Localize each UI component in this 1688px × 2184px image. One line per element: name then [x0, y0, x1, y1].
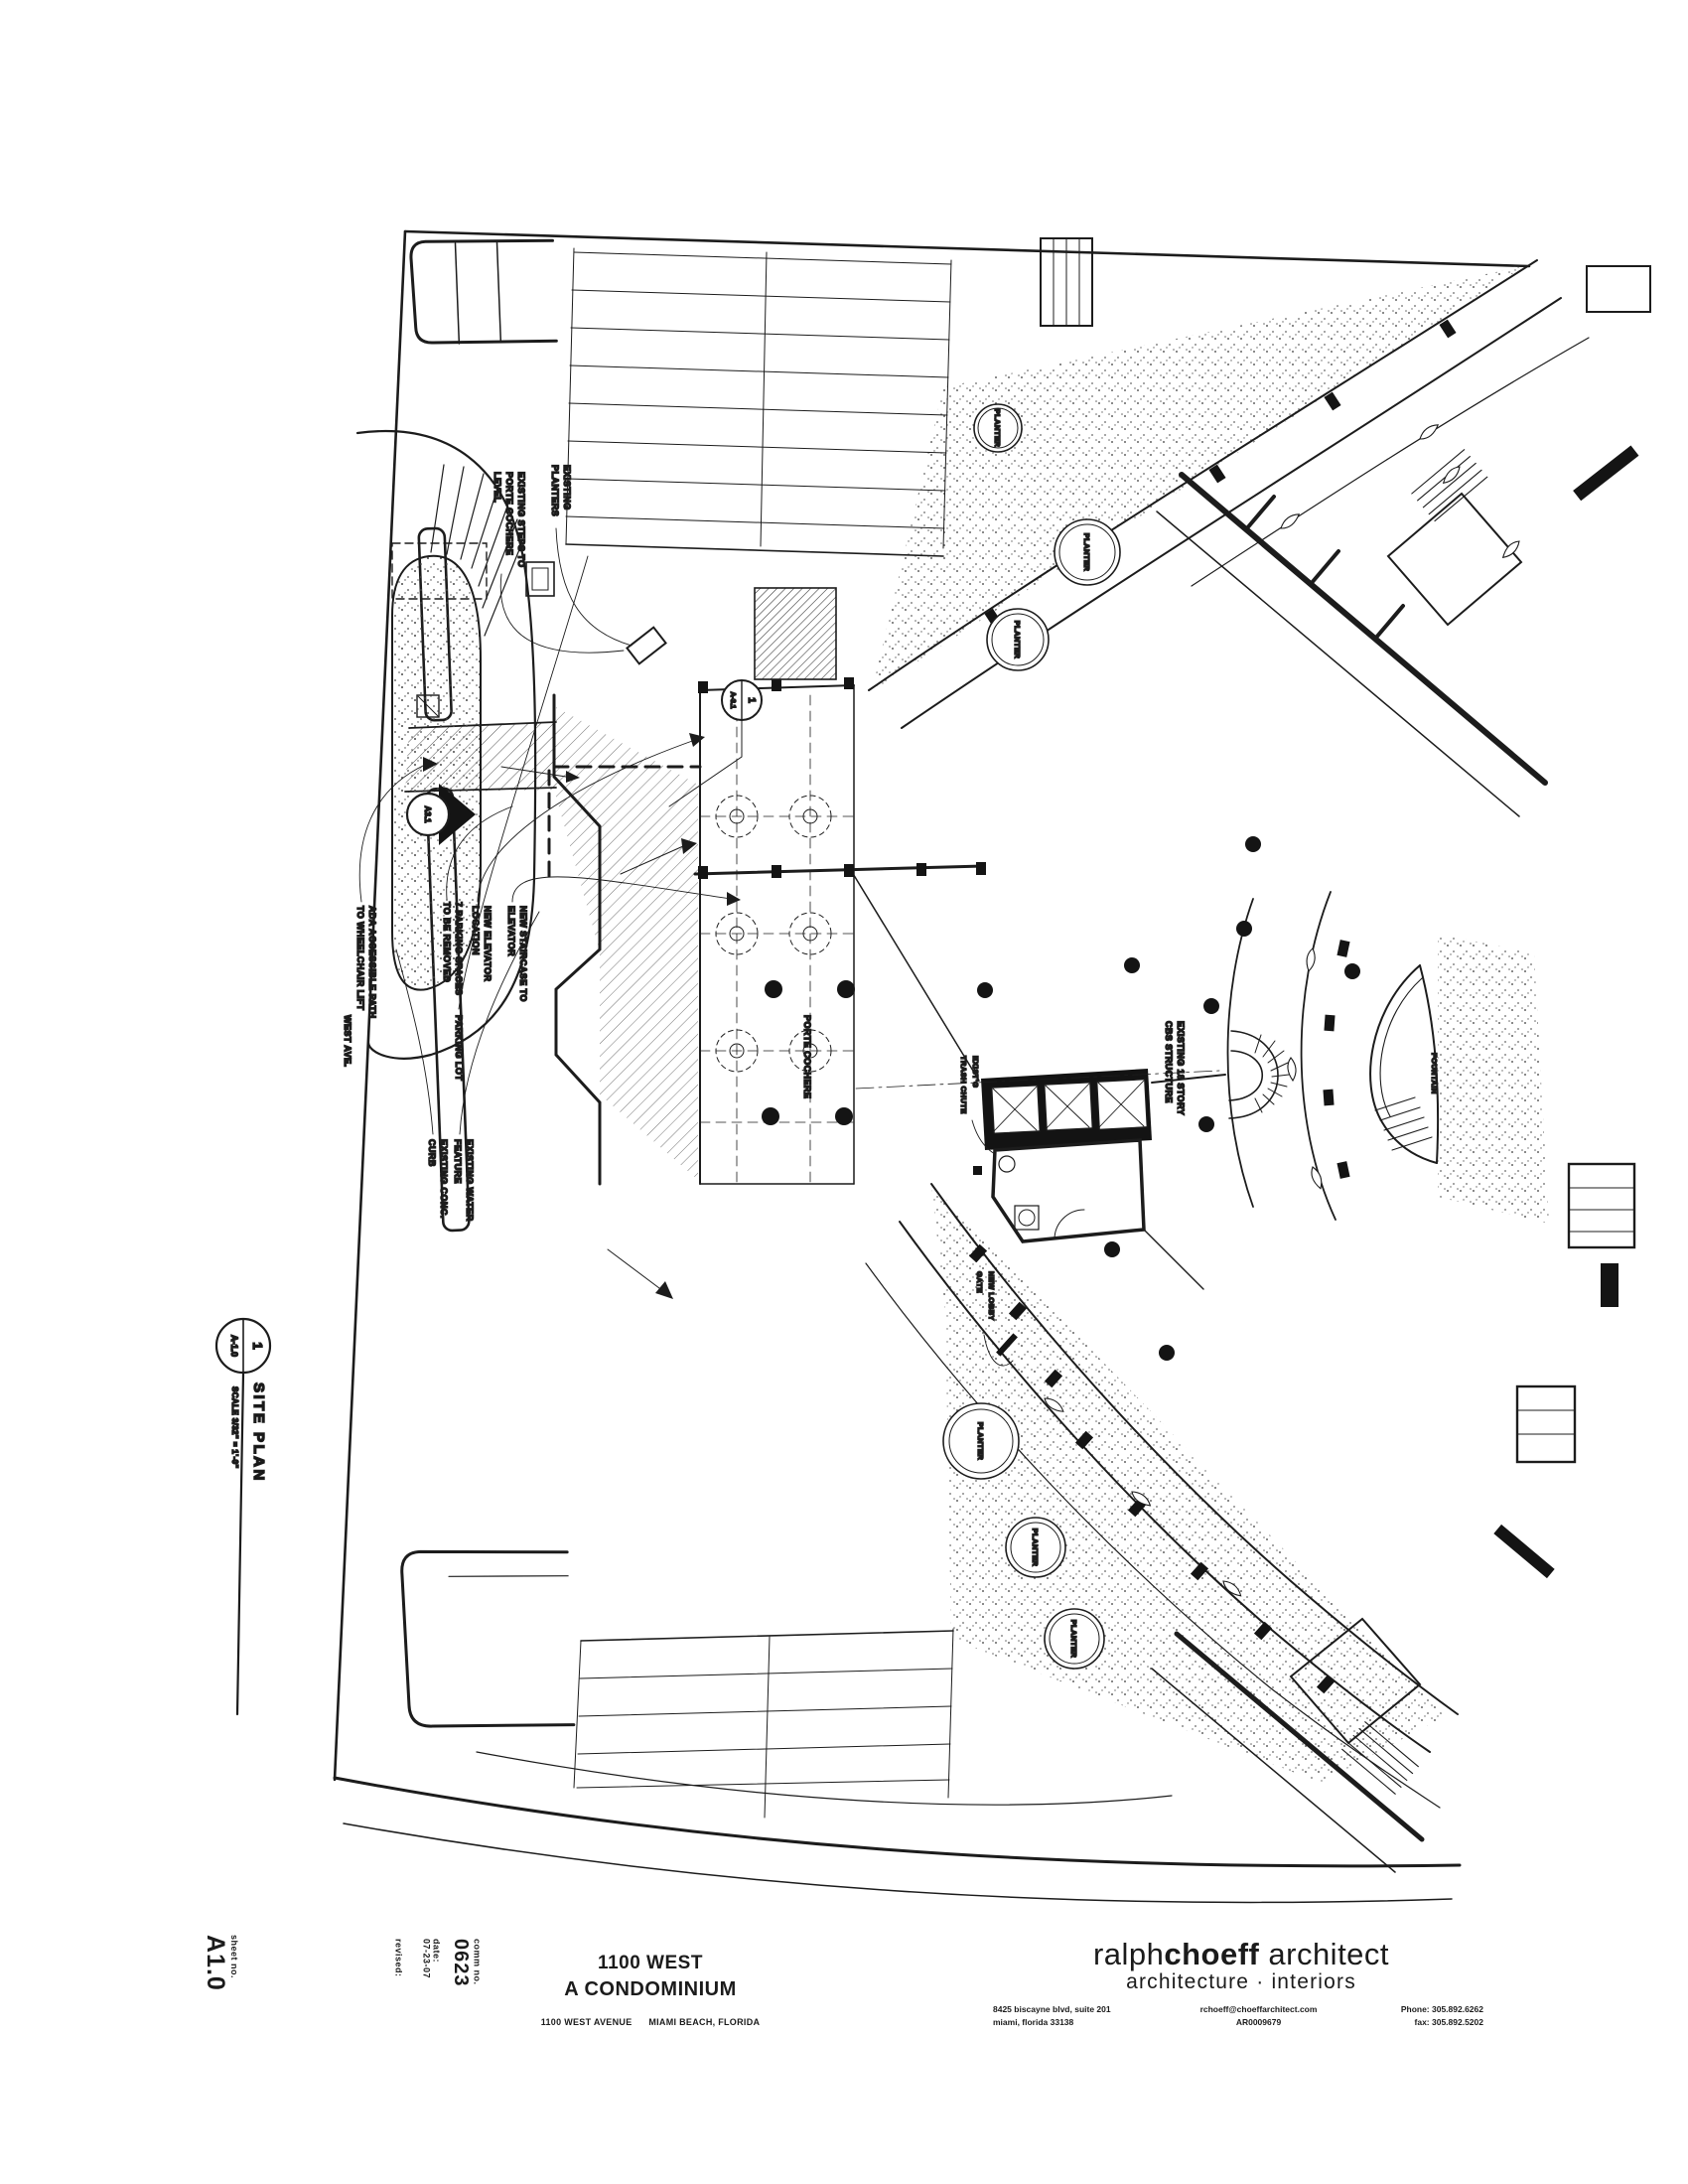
paved-plaza-textures: [872, 266, 1549, 1783]
annotation-ada-path: ADA ACCESSIBLE PATH: [367, 906, 377, 1019]
annotation-trash-chute: TRASH CHUTE: [959, 1056, 968, 1114]
annotation-new-stairs: NEW STAIRCASE TO: [518, 906, 528, 1002]
date-label: date:: [431, 1939, 441, 1978]
firm-name-part1: ralph: [1093, 1937, 1164, 1971]
annotation-existing-structure: CBS STRUCTURE: [1164, 1021, 1174, 1103]
annotation-trash-chute: EXIST'G: [971, 1056, 980, 1088]
firm-address-line2: miami, florida 33138: [993, 2016, 1177, 2029]
firm-fax: fax: 305.892.5202: [1340, 2016, 1483, 2029]
drawing-title: SITE PLAN: [250, 1383, 267, 1483]
planter-label: PLANTER: [976, 1422, 985, 1461]
annotation-conc-curb: CURB: [427, 1139, 437, 1167]
annotation-parking-lot: PARKING LOT: [454, 1015, 464, 1081]
firm-phone: Phone: 305.892.6262: [1340, 2003, 1483, 2016]
annotation-conc-curb: EXISTING CONC.: [439, 1139, 449, 1219]
detail-bubble-sheet: A-3.1: [729, 691, 736, 708]
annotation-fountain: FOUNTAIN: [1430, 1053, 1439, 1094]
bottom-parking: [574, 1629, 953, 1818]
annotation-west-ave: WEST AVE.: [343, 1015, 352, 1068]
firm-contact: rchoeff@choeffarchitect.com AR0009679: [1177, 2003, 1340, 2029]
firm-address: 8425 biscayne blvd, suite 201 miami, flo…: [993, 2003, 1177, 2029]
annotation-parking-removed: TO BE REMOVED: [442, 902, 452, 982]
drawing-scale: SCALE 3/32" = 1'-0": [230, 1386, 239, 1469]
annotation-new-stairs: ELEVATOR: [506, 906, 516, 956]
project-name-line2: A CONDOMINIUM: [516, 1978, 784, 2001]
annotation-porte-cochere: PORTE COCHERE: [802, 1015, 812, 1098]
architect-title-block: ralphchoeffarchitect architecture · inte…: [993, 1937, 1489, 2029]
planter-label: PLANTER: [1069, 1620, 1078, 1659]
planter: PLANTER: [1045, 1609, 1104, 1669]
firm-name: ralphchoeffarchitect: [993, 1937, 1489, 1972]
drawing-sheet-ref: A-1.0: [229, 1335, 239, 1357]
comm-no-label: comm no.: [472, 1939, 482, 1987]
revised-label: revised:: [393, 1939, 403, 1977]
date-value: 07-23-07: [421, 1939, 431, 1978]
planter: PLANTER: [1006, 1518, 1065, 1577]
annotation-existing-steps: EXISTING STEPS TO: [516, 472, 526, 568]
section-marker-label: A3.1: [423, 806, 432, 823]
firm-tagline: architecture · interiors: [993, 1970, 1489, 1994]
sheet-no-label: sheet no.: [229, 1935, 239, 1991]
firm-email: rchoeff@choeffarchitect.com: [1177, 2003, 1340, 2016]
drawing-title-block: 1 A-1.0 SITE PLAN SCALE 3/32" = 1'-0": [216, 1319, 270, 1714]
firm-phone-fax: Phone: 305.892.6262 fax: 305.892.5202: [1340, 2003, 1489, 2029]
planter: PLANTER: [1055, 519, 1120, 585]
sheet-no-field: sheet no. A1.0: [201, 1935, 239, 1991]
porte-cochere-canopy: [695, 677, 986, 1184]
comm-no-field: comm no. 0623: [449, 1939, 482, 1987]
street-curbs: [351, 236, 609, 1731]
sheet-no-value: A1.0: [201, 1935, 229, 1991]
annotations: EXISTING PLANTERS EXISTING STEPS TO PORT…: [343, 465, 1439, 1321]
annotation-water-feature: EXISTING WATER: [465, 1139, 475, 1222]
annotation-lobby-gate: GATE: [975, 1271, 984, 1293]
annotation-existing-planters: PLANTERS: [550, 465, 560, 516]
planter-label: PLANTER: [1031, 1529, 1040, 1567]
comm-no-value: 0623: [449, 1939, 472, 1987]
drawing-number: 1: [250, 1342, 265, 1349]
revised-field: revised:: [393, 1939, 403, 1977]
site-plan-drawing: PLANTER PLANTER PLANTER PLANTER PLANTER …: [0, 0, 1688, 2184]
project-title-block: 1100 WEST A CONDOMINIUM 1100 WEST AVENUE…: [516, 1953, 784, 2027]
firm-name-part2: choeff: [1164, 1937, 1259, 1971]
annotation-ada-path: TO WHEELCHAIR LIFT: [355, 906, 365, 1010]
planter-label: PLANTER: [1082, 533, 1091, 572]
firm-address-line1: 8425 biscayne blvd, suite 201: [993, 2003, 1177, 2016]
annotation-new-elevator: LOCATION: [471, 906, 481, 955]
annotation-lobby-gate: NEW LOBBY: [987, 1271, 996, 1321]
annotation-water-feature: FEATURE: [453, 1139, 463, 1184]
annotation-existing-steps: LEVEL: [492, 472, 502, 503]
planter-label: PLANTER: [993, 409, 1002, 448]
elevator-core: [973, 1069, 1225, 1289]
annotation-existing-structure: EXISTING 18 STORY: [1176, 1021, 1186, 1115]
planter: PLANTER: [987, 609, 1049, 670]
detail-bubble-number: 1: [746, 697, 757, 703]
firm-name-part3: architect: [1268, 1937, 1389, 1971]
date-field: date: 07-23-07: [421, 1939, 442, 1978]
drawing-sheet: PLANTER PLANTER PLANTER PLANTER PLANTER …: [0, 0, 1688, 2184]
planter: PLANTER: [943, 1403, 1019, 1479]
annotation-new-elevator: NEW ELEVATOR: [483, 906, 492, 981]
project-name-line1: 1100 WEST: [516, 1953, 784, 1974]
curved-stair: [1229, 1031, 1289, 1118]
firm-license: AR0009679: [1177, 2016, 1340, 2029]
annotation-existing-steps: PORTE COCHERE: [504, 472, 514, 555]
fountain: [1370, 965, 1438, 1163]
project-address: 1100 WEST AVENUE MIAMI BEACH, FLORIDA: [516, 2017, 784, 2027]
annotation-parking-removed: 7 PARKING SPACES: [454, 902, 464, 995]
planter: PLANTER: [974, 404, 1022, 452]
planter-label: PLANTER: [1013, 621, 1022, 659]
bottom-roads: [335, 1752, 1460, 1902]
annotation-existing-planters: EXISTING: [562, 465, 572, 510]
